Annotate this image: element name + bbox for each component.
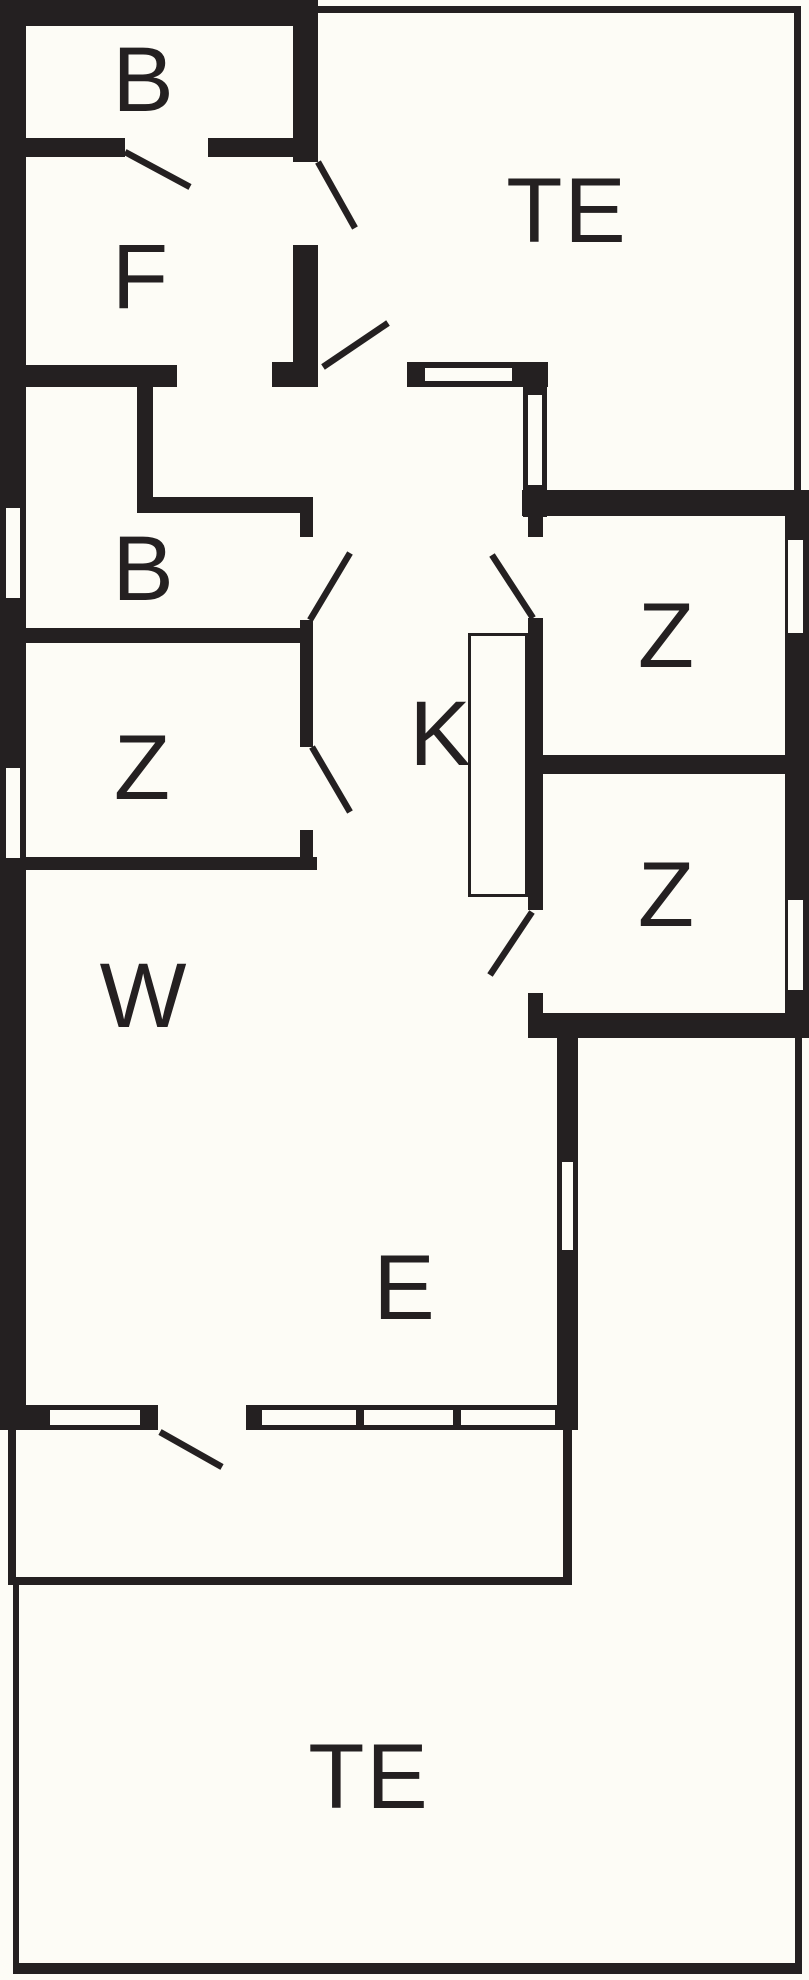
wall-segment: [795, 1038, 802, 1972]
room-label-bedroom-left: Z: [114, 722, 172, 814]
room-label-terrace-bottom: TE: [308, 1731, 430, 1823]
window: [262, 1410, 356, 1425]
wall-segment: [563, 1430, 572, 1585]
door-swing: [310, 553, 350, 620]
wall-segment: [13, 1963, 802, 1974]
room-label-bedroom-right-bottom: Z: [638, 849, 696, 941]
window: [6, 508, 20, 598]
room-label-utility-room: F: [112, 231, 170, 323]
wall-segment: [272, 362, 318, 387]
wall-segment: [0, 0, 26, 1430]
room-label-bathroom-middle: B: [112, 523, 175, 615]
wall-segment: [313, 6, 801, 13]
wall-segment: [13, 1585, 19, 1970]
window: [6, 768, 20, 858]
wall-segment: [25, 365, 177, 387]
wall-segment: [293, 26, 318, 162]
wall-segment: [8, 1430, 16, 1582]
window: [461, 1410, 555, 1425]
wall-segment: [25, 857, 317, 870]
window: [788, 540, 803, 633]
floorplan-canvas: BTEFBZKZZWETE: [0, 0, 809, 1980]
wall-segment: [208, 138, 293, 157]
window: [562, 1162, 573, 1250]
window: [364, 1410, 453, 1425]
room-label-bathroom-top: B: [112, 34, 175, 126]
wall-segment: [137, 382, 153, 513]
door-swing: [125, 152, 190, 187]
wall-segment: [794, 6, 801, 496]
wall-segment: [25, 628, 313, 643]
door-swing: [490, 912, 532, 975]
wall-segment: [25, 138, 125, 157]
wall-segment: [528, 755, 785, 774]
room-label-terrace-top: TE: [506, 165, 628, 257]
door-swing: [318, 162, 355, 228]
wall-segment: [137, 497, 313, 513]
room-label-dining-area: E: [373, 1242, 436, 1334]
room-label-kitchen: K: [409, 688, 472, 780]
door-swing: [160, 1432, 222, 1467]
wall-segment: [8, 1577, 572, 1585]
kitchen-counter: [468, 633, 528, 897]
door-opening: [158, 1403, 246, 1432]
window: [528, 395, 542, 485]
window: [50, 1410, 140, 1425]
room-label-bedroom-right-top: Z: [638, 590, 696, 682]
wall-segment: [528, 513, 543, 537]
window: [425, 368, 512, 381]
door-swing: [492, 555, 533, 618]
wall-segment: [528, 1013, 809, 1038]
wall-segment: [522, 490, 809, 516]
door-swing: [312, 747, 350, 812]
wall-segment: [300, 513, 313, 537]
room-label-living-room: W: [100, 950, 189, 1042]
door-swing: [323, 323, 388, 367]
wall-segment: [0, 0, 318, 26]
window: [788, 900, 803, 990]
